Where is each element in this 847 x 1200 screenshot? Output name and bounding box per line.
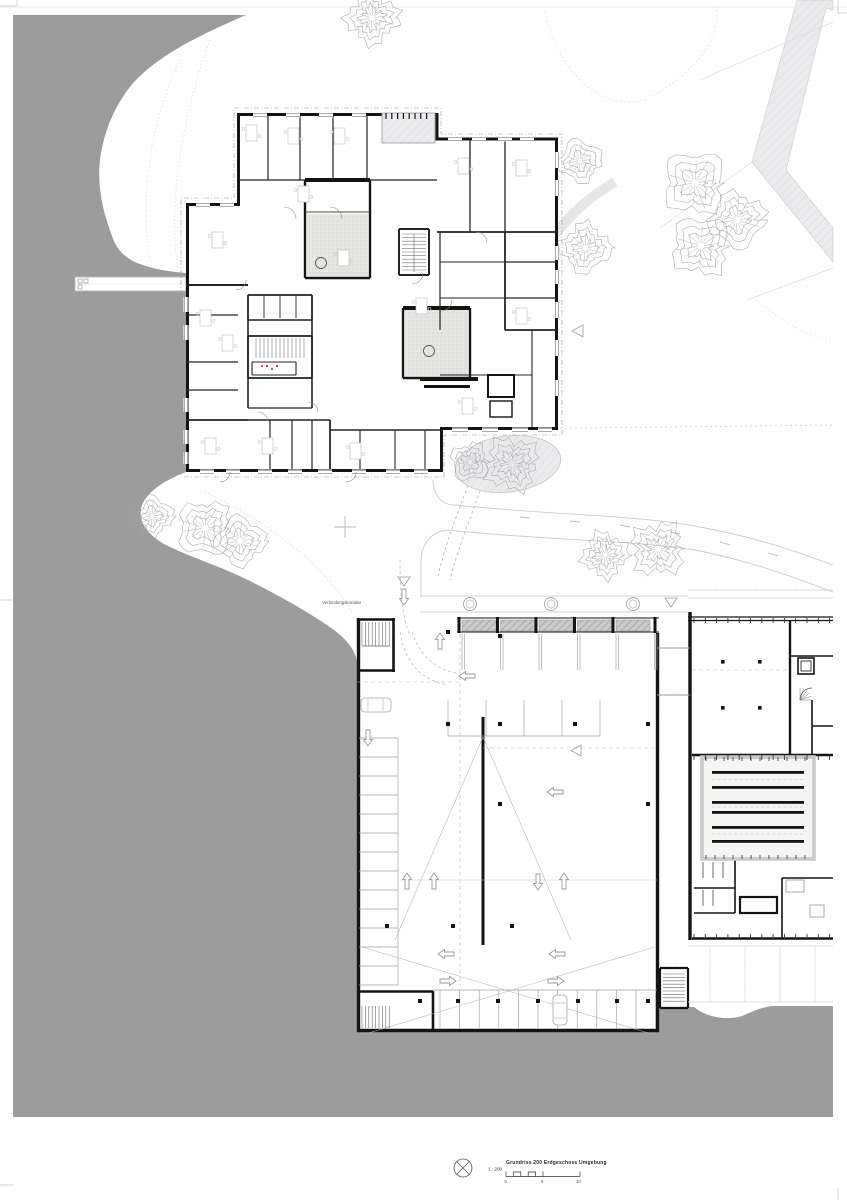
title-block: 1 : 200 Grundriss 200 Erdgeschoss Umgebu… [454, 1159, 607, 1184]
courtyard-hall-b [403, 308, 470, 378]
floor-plan-sheet: Verbindungskorridor 1 : 200 Grundriss 20… [0, 0, 847, 1200]
lane-hall [702, 757, 814, 859]
scale-ratio: 1 : 200 [488, 1167, 502, 1172]
dock [75, 277, 186, 291]
plan-title: Grundriss 200 Erdgeschoss Umgebung [506, 1160, 607, 1166]
scale-bar [506, 1172, 580, 1177]
parking-garage [357, 560, 688, 1035]
north-arrow-icon [454, 1159, 472, 1177]
scale-tick-0: 0 [505, 1179, 508, 1184]
parked-car [553, 995, 567, 1025]
upper-building [181, 108, 562, 482]
parked-car [361, 698, 391, 712]
site-plan-drawing: Verbindungskorridor 1 : 200 Grundriss 20… [0, 0, 847, 1200]
scale-tick-10: 10 [576, 1179, 581, 1184]
corridor-label: Verbindungskorridor [322, 600, 362, 605]
scale-tick-5: 5 [541, 1179, 544, 1184]
